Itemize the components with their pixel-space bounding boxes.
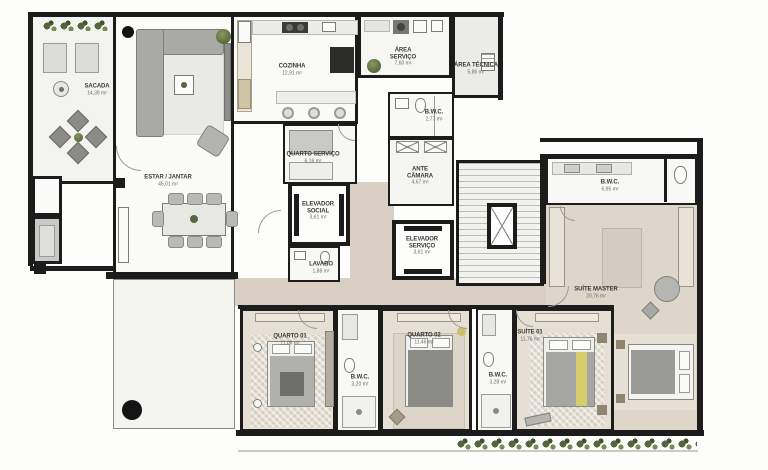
column	[122, 26, 134, 38]
vanity	[342, 314, 358, 340]
sofa-vertical	[136, 29, 164, 137]
room-label-suite-01: SUÍTE 0111,76 m²	[517, 330, 542, 343]
shower-drain	[356, 409, 362, 415]
lounge-chair	[75, 43, 99, 73]
dining-chair	[168, 193, 184, 205]
pillow	[572, 340, 591, 350]
room-bwc-master	[546, 157, 697, 205]
pouf	[641, 301, 659, 319]
void-area	[113, 279, 235, 429]
bed	[267, 341, 315, 407]
armchair	[654, 276, 680, 302]
room-bwc-servico	[388, 92, 454, 138]
sideboard	[118, 207, 129, 263]
room-area-servico	[358, 14, 452, 78]
dining-chair	[206, 236, 222, 248]
island-counter	[276, 91, 356, 104]
dining-chair	[168, 236, 184, 248]
wardrobe	[325, 331, 334, 407]
side-table-dot	[59, 87, 64, 92]
wall-column	[113, 178, 125, 188]
door-arc-hall	[258, 210, 281, 233]
room-label-quarto-02: QUARTO 0211,46 m²	[407, 333, 440, 346]
kitchen-sink	[322, 22, 336, 32]
room-label-quarto-servico: QUARTO SERVIÇO6,16 m²	[286, 152, 339, 165]
stairwell	[456, 160, 544, 286]
room-label-lavabo: LAVABO1,88 m²	[309, 262, 333, 275]
wall-top	[28, 12, 504, 17]
sink	[395, 98, 409, 109]
room-label-bwc-servico: B.W.C.2,77 m²	[425, 110, 443, 123]
wall-void-step	[30, 266, 114, 271]
outdoor-chair	[67, 142, 90, 165]
dining-chair	[187, 236, 203, 248]
burner	[297, 24, 304, 31]
pillow	[549, 340, 568, 350]
toilet	[344, 358, 355, 373]
dining-chair	[226, 211, 238, 227]
closet-left	[549, 207, 565, 287]
room-label-quarto-01: QUARTO 0111,06 m²	[273, 334, 306, 347]
corner-plant	[216, 29, 231, 44]
dining-chair	[152, 211, 164, 227]
wall-wing-top	[543, 154, 700, 158]
table-plant	[74, 133, 83, 142]
room-label-area-servico: ÁREA SERVIÇO7,60 m²	[390, 47, 416, 66]
door-panel	[424, 141, 447, 153]
outdoor-chair	[85, 126, 108, 149]
pillow	[679, 374, 690, 393]
room-label-bwc-quartos: B.W.C.3,20 m²	[351, 375, 369, 388]
room-bwc-quartos	[336, 308, 380, 432]
shaft-box	[32, 176, 62, 216]
bed	[405, 335, 453, 407]
cabinet-inner	[39, 225, 55, 257]
duvet	[631, 350, 675, 394]
room-sacada	[30, 14, 116, 184]
divider-wall	[664, 159, 667, 202]
planter-plants	[41, 20, 109, 31]
sink	[564, 164, 580, 173]
column	[122, 400, 142, 420]
toilet	[674, 166, 687, 184]
room-label-elevador-social: ELEVADOR SOCIAL3,61 m²	[302, 201, 334, 220]
closet-right	[678, 207, 694, 287]
outdoor-chair	[49, 126, 72, 149]
cabinet	[431, 20, 443, 32]
coffee-table-dot	[181, 82, 187, 88]
room-area-tecnica	[452, 14, 502, 98]
master-rug	[602, 228, 642, 288]
fridge	[238, 21, 251, 43]
wall-left	[28, 12, 33, 266]
room-label-estar-jantar: ESTAR / JANTAR45,01 m²	[144, 175, 191, 188]
shower-drain	[493, 408, 499, 414]
closet-strip	[535, 313, 599, 322]
side-table	[616, 340, 625, 349]
side-table	[616, 394, 625, 403]
elevator-rail	[339, 194, 344, 236]
outdoor-chair	[67, 110, 90, 133]
elevator-rail	[404, 269, 442, 274]
laundry-tank	[413, 20, 427, 33]
range-hood-island	[330, 47, 354, 73]
single-bed	[289, 130, 333, 154]
room-label-bwc-suite-01: B.W.C.3,28 m²	[489, 373, 507, 386]
laundry-counter	[364, 20, 390, 32]
oven-tower	[238, 79, 251, 109]
tv-panel	[224, 43, 231, 121]
bar-stool	[282, 107, 294, 119]
sink	[294, 251, 306, 260]
room-label-sacada: SACADA14,39 m²	[84, 84, 109, 97]
elevator-rail	[404, 226, 442, 231]
room-bwc-suite-01	[476, 308, 514, 432]
lounge-chair	[43, 43, 67, 73]
door-panel	[396, 141, 419, 153]
room-quarto-01	[240, 308, 336, 432]
wall-tecnica-right	[498, 12, 503, 100]
side-table	[597, 405, 607, 415]
toilet	[483, 352, 494, 367]
bar-stool	[334, 107, 346, 119]
room-label-cozinha: COZINHA12,91 m²	[279, 64, 306, 77]
room-label-ante-camara: ANTE CÂMARA4,67 m²	[407, 166, 433, 185]
room-label-bwc-master: B.W.C.6,95 m²	[601, 180, 619, 193]
duvet	[408, 350, 452, 406]
wall-bottom	[236, 430, 704, 436]
dining-chair	[206, 193, 222, 205]
burner	[286, 24, 293, 31]
nightstand	[253, 343, 262, 352]
room-label-elevador-servico: ELEVADOR SERVIÇO3,61 m²	[406, 236, 438, 255]
pillow	[679, 351, 690, 370]
master-bed	[628, 344, 694, 400]
bed	[543, 337, 595, 407]
wall-bedrooms-top	[238, 305, 614, 309]
elevator-rail	[294, 194, 299, 236]
room-label-suite-master: SUÍTE MASTER20,76 m²	[574, 287, 617, 300]
dining-chair	[187, 193, 203, 205]
elevator-shaft	[487, 203, 517, 249]
wall-wing-parapet	[540, 138, 703, 142]
wall-right	[697, 138, 703, 436]
vanity	[482, 314, 496, 336]
garden-strip	[455, 438, 697, 451]
blanket	[280, 372, 304, 396]
dining-centerpiece	[190, 215, 198, 223]
yellow-runner	[576, 352, 587, 406]
laundry-plant	[367, 59, 381, 73]
bar-stool	[308, 107, 320, 119]
left-cabinet	[32, 216, 62, 264]
floor-plan: SACADA14,39 m² ESTAR / JANTAR45,01 m² CO…	[0, 0, 768, 470]
wardrobe	[289, 162, 333, 180]
side-table	[597, 333, 607, 343]
room-label-area-tecnica: ÁREA TÉCNICA5,86 m²	[454, 63, 498, 76]
washer-door	[397, 23, 405, 31]
wall-wing-left	[540, 154, 546, 284]
sink	[596, 164, 612, 173]
nightstand	[253, 399, 262, 408]
wall-void-top	[106, 272, 238, 279]
